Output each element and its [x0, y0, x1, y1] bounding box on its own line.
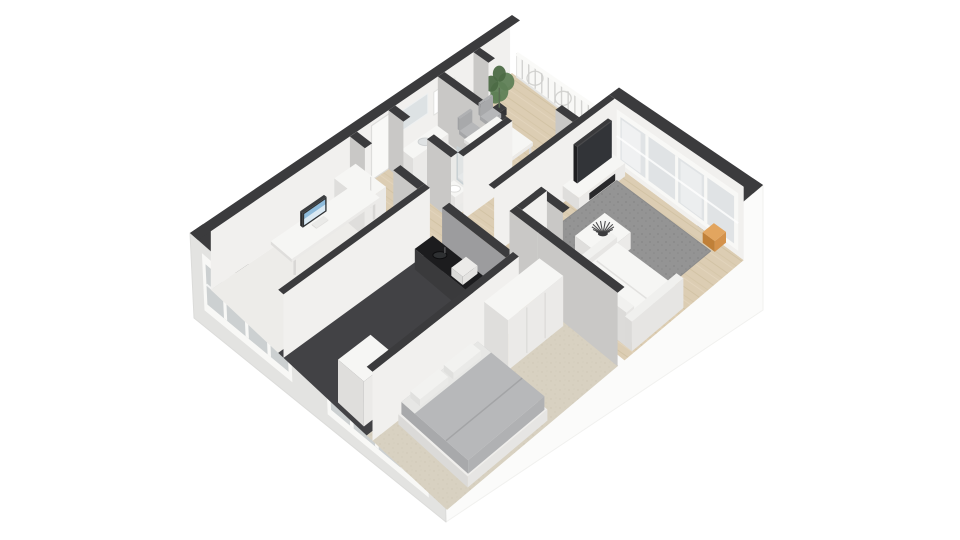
floor-plan-canvas	[0, 0, 960, 540]
floorplan-3d-rendering	[0, 0, 960, 540]
